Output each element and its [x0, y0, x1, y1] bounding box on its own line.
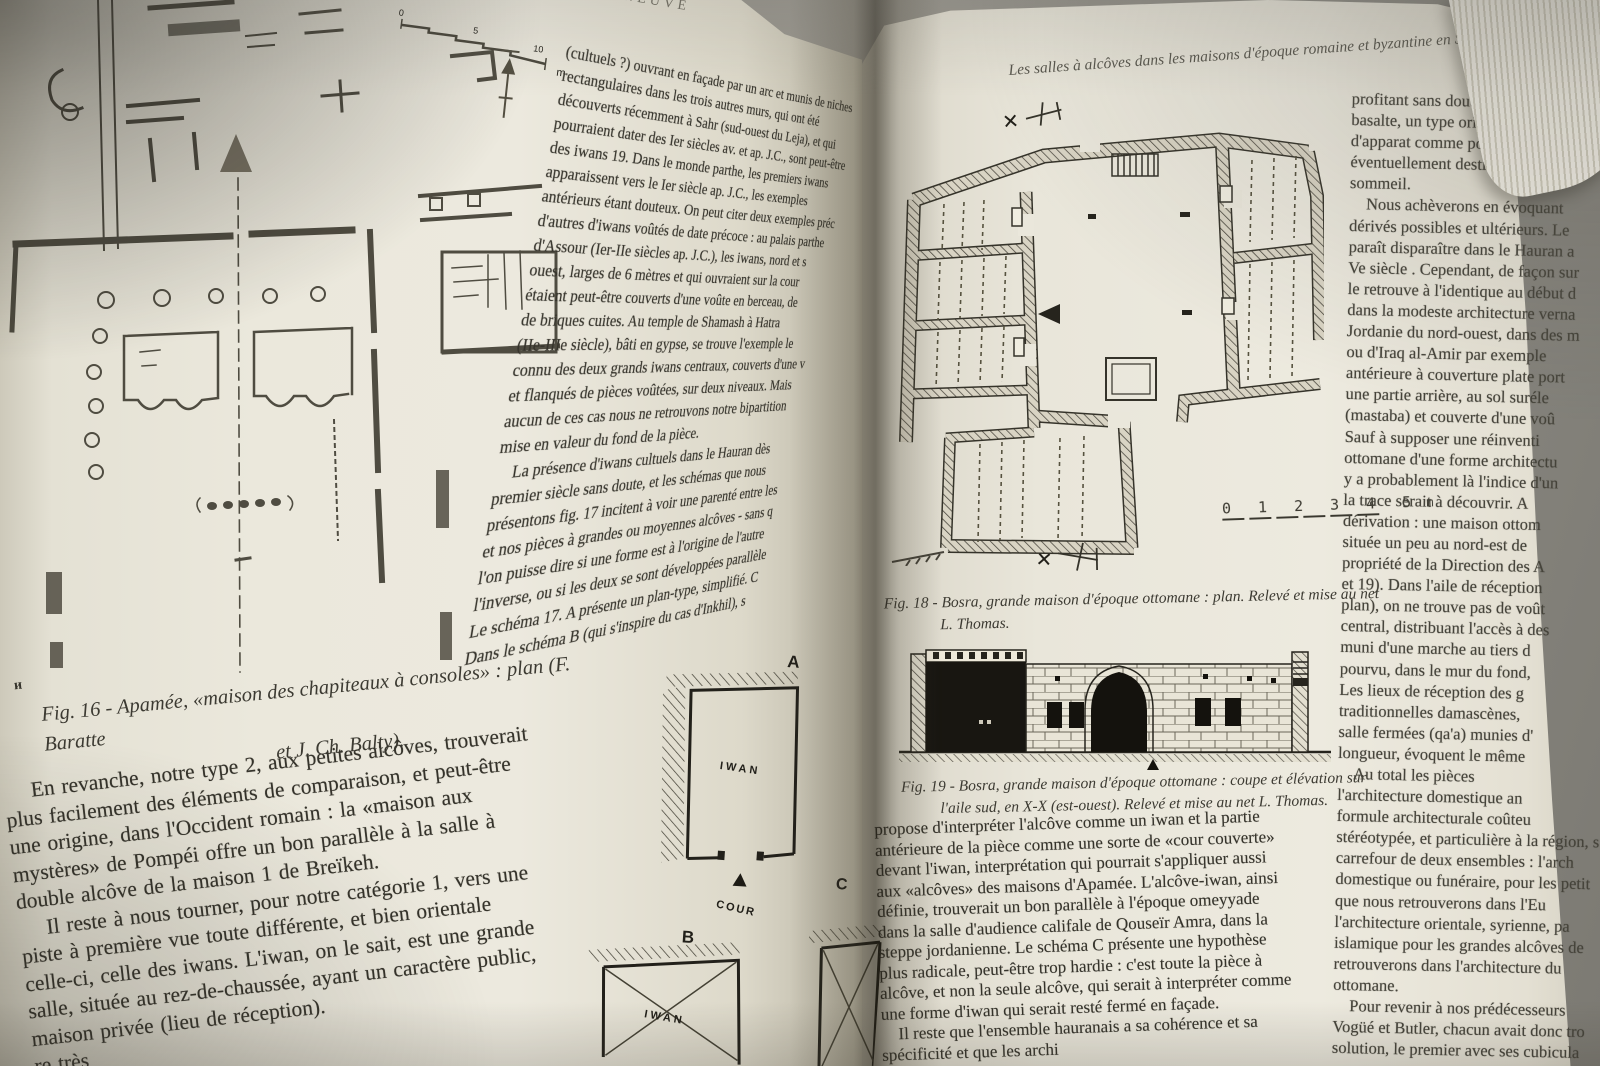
- section-marker-icon: ✕: [998, 95, 1071, 141]
- section-marker-x: ✕: [1035, 549, 1053, 572]
- schema-b-label: B: [681, 927, 695, 947]
- figure16-plan-drawing: [0, 0, 560, 676]
- right-mid-text-column: propose d'interpréter l'alcôve comme un …: [874, 804, 1335, 1066]
- schema-c-label: C: [835, 876, 848, 894]
- section-marker-x: ✕: [1001, 110, 1020, 133]
- right-edge-text-column: profitant sans doute des facilités off b…: [1332, 88, 1600, 1065]
- section-marker-icon: ✕: [1033, 534, 1106, 579]
- scale-tick-0: 0: [398, 7, 404, 18]
- plan-stray-mark: ᴎ: [13, 678, 23, 695]
- figure17-schema-drawing: A IWAN COUR B IWAN C: [573, 626, 902, 1066]
- schema-a-room-label: IWAN: [719, 760, 761, 778]
- scale-tick-5: 5: [473, 25, 479, 36]
- schema-a-label: A: [787, 652, 801, 672]
- triangle-marker-icon: [1038, 304, 1060, 324]
- figure18-plan-drawing: [884, 96, 1324, 566]
- triangle-marker-icon: [733, 873, 748, 887]
- book-photo: LENEUVE: [0, 0, 1600, 1066]
- figure19-elevation-drawing: [895, 628, 1335, 778]
- scale-tick-10: 10: [533, 43, 544, 54]
- schema-court-label: COUR: [715, 898, 757, 919]
